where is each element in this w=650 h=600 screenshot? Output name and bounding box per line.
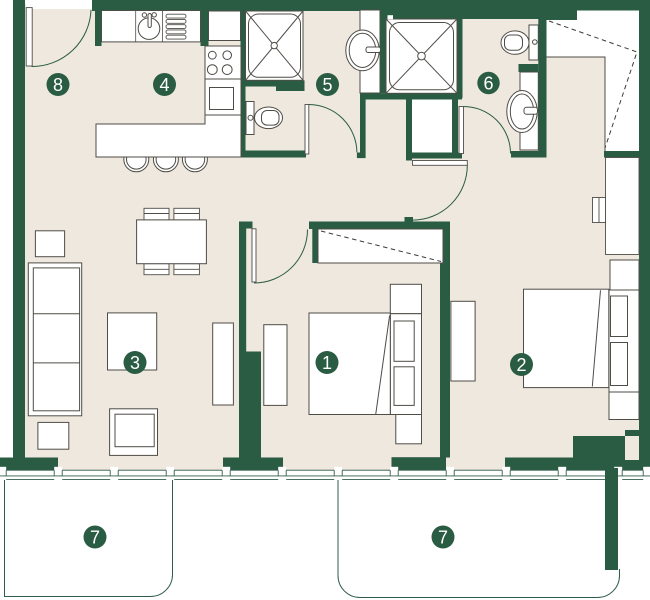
svg-text:2: 2 bbox=[516, 355, 526, 375]
svg-text:7: 7 bbox=[90, 528, 100, 548]
svg-text:5: 5 bbox=[322, 75, 332, 95]
svg-text:7: 7 bbox=[438, 528, 448, 548]
svg-text:3: 3 bbox=[130, 353, 140, 373]
svg-text:4: 4 bbox=[159, 75, 169, 95]
svg-text:8: 8 bbox=[53, 75, 63, 95]
svg-text:1: 1 bbox=[322, 353, 332, 373]
svg-text:6: 6 bbox=[483, 74, 493, 94]
